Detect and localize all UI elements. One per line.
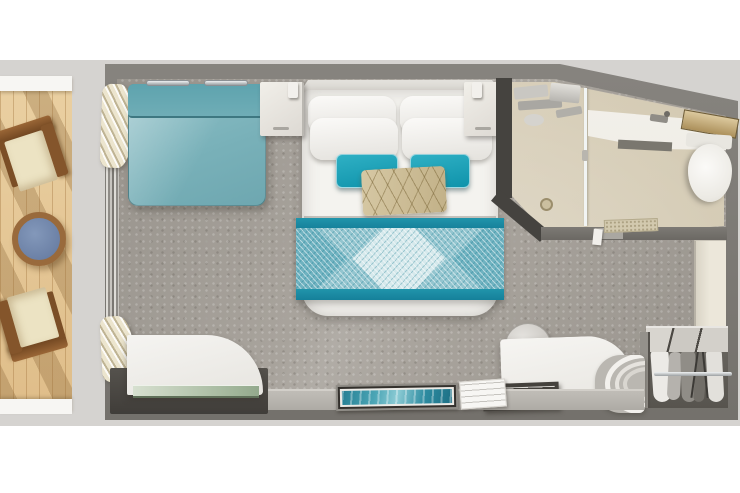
balcony-rail-bottom	[0, 399, 72, 414]
bath-mat	[604, 218, 658, 233]
sliding-balcony-door	[106, 152, 119, 328]
drawer-handle	[475, 127, 490, 130]
runner-hatch-texture	[296, 228, 504, 290]
wardrobe-doors	[646, 326, 728, 352]
bathroom-door	[592, 229, 603, 246]
runner-edge-band	[296, 289, 504, 300]
notepad	[459, 378, 507, 409]
shower-door-handle	[582, 150, 588, 161]
stateroom-floorplan	[0, 0, 740, 493]
bed-runner	[296, 218, 504, 300]
shower-fitting	[524, 114, 544, 126]
artwork-frame	[338, 385, 456, 409]
framed-artwork	[336, 383, 458, 411]
balcony-rail-top	[0, 76, 72, 91]
faucet-knob	[664, 111, 670, 117]
balcony-table	[12, 212, 66, 266]
glass-shelf	[133, 385, 259, 398]
reading-light	[288, 82, 298, 98]
sofa-backrest	[128, 84, 266, 118]
artwork-canvas	[342, 389, 452, 405]
sofa-frame-bar	[146, 80, 190, 86]
sofa-frame-bar	[204, 80, 248, 86]
closet-rail	[654, 372, 732, 376]
drawer-handle	[273, 127, 290, 130]
artwork-mat	[340, 387, 454, 407]
wardrobe	[640, 326, 728, 412]
bathroom-wall	[496, 78, 512, 198]
floor-drain	[540, 198, 553, 211]
accent-pillow	[361, 166, 447, 216]
runner-diamond-panel	[296, 228, 504, 290]
side-cabinet	[694, 240, 726, 330]
sofa	[128, 84, 266, 206]
shower-head	[549, 82, 581, 103]
reading-light	[472, 82, 482, 98]
